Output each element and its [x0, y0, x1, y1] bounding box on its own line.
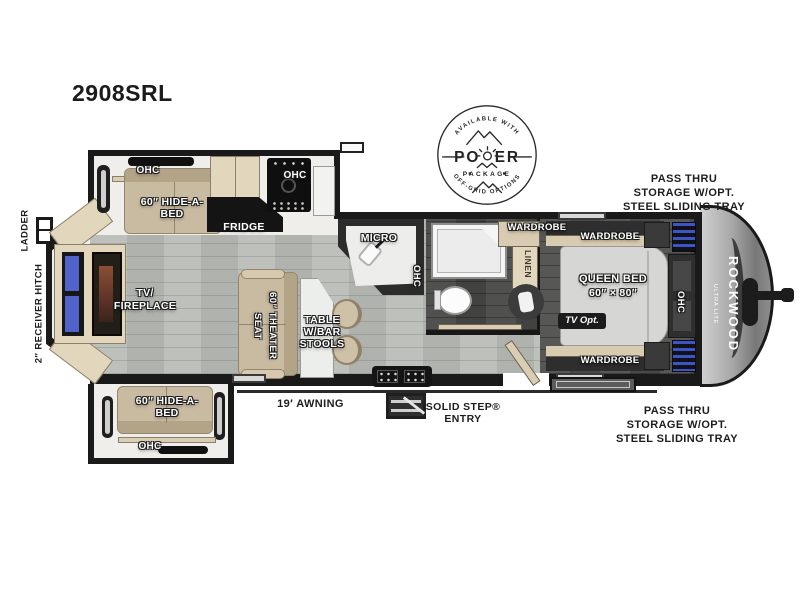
queen-bed-line1: QUEEN BED	[558, 272, 668, 286]
hitch-ball	[781, 288, 794, 302]
tv-fireplace-line2: FIREPLACE	[103, 300, 187, 313]
storage-bin-top	[672, 222, 696, 252]
table-line2: W/BAR	[292, 326, 352, 338]
badge-available-text: AVAILABLE WITH	[454, 116, 520, 136]
hide-a-bed-bottom-line2: BED	[123, 407, 211, 419]
pass-thru-top-line1: PASS THRU	[609, 172, 759, 186]
shower	[431, 223, 507, 279]
ohc-bottom-label: OHC	[128, 441, 172, 453]
window-glass	[105, 400, 110, 434]
table-label: TABLE W/BAR STOOLS	[292, 314, 352, 350]
tray-inner	[556, 381, 630, 388]
storage-bin-bottom	[672, 340, 696, 372]
brand-mark: ROCKWOOD ULTRA LITE	[712, 244, 742, 364]
power-package-badge: AVAILABLE WITH OFF-GRID OPTIONS PO ER PA…	[434, 102, 540, 208]
stove-knobs	[271, 161, 307, 166]
tv-fireplace-line1: TV/	[103, 287, 187, 300]
tv-panel-top	[65, 256, 79, 291]
tv-fireplace-label: TV/ FIREPLACE	[103, 287, 187, 313]
pass-thru-bottom-line2: STORAGE W/OPT.	[602, 418, 752, 432]
theater-seat-label: 60″ THEATER SEAT	[246, 278, 280, 374]
toilet	[438, 286, 472, 315]
badge-package-text: PACKAGE	[463, 171, 511, 178]
bath-vanity	[508, 284, 544, 320]
griddle-burner-1	[377, 370, 398, 383]
page-title: 2908SRL	[72, 80, 173, 107]
brand-name: ROCKWOOD	[726, 256, 741, 352]
ladder-label: LADDER	[20, 186, 33, 276]
entry-line2: ENTRY	[418, 413, 508, 425]
fridge-cabinet	[210, 156, 260, 201]
hitch-arm	[756, 291, 784, 300]
wardrobe-bottom-label: WARDROBE	[565, 355, 655, 367]
linen-label: LINEN	[517, 243, 533, 285]
table-line3: STOOLS	[292, 338, 352, 350]
table-line1: TABLE	[292, 314, 352, 326]
sofa-back	[118, 421, 212, 433]
stove-grate-dots	[271, 201, 307, 210]
wardrobe-top-label: WARDROBE	[565, 231, 655, 243]
window-glass	[217, 397, 222, 435]
bath-door	[438, 324, 522, 330]
propane-tanks	[742, 278, 758, 326]
bedroom-ohc-label: OHC	[670, 280, 686, 324]
pass-thru-top-line2: STORAGE W/OPT.	[609, 186, 759, 200]
bedroom-window-top	[558, 212, 606, 220]
awning-label: 19′ AWNING	[258, 398, 363, 410]
pass-thru-top-line3: STEEL SLIDING TRAY	[609, 200, 759, 214]
hide-a-bed-top-line2: BED	[128, 208, 216, 220]
badge-dot-left	[469, 172, 471, 174]
hide-a-bed-top-label: 60″ HIDE-A- BED	[128, 196, 216, 220]
slideout-bottom-window-left	[102, 396, 113, 438]
ohc-range-label: OHC	[272, 170, 318, 182]
ohc-corner-label: OHC	[408, 254, 422, 298]
slideout-top-window	[97, 165, 110, 213]
badge-dot-right	[503, 172, 505, 174]
zigzag-icon	[477, 163, 496, 167]
brand-sub: ULTRA LITE	[712, 284, 718, 324]
badge-power-right: ER	[495, 149, 520, 166]
shower-glass	[437, 229, 501, 273]
vanity-sink	[517, 291, 534, 313]
tv-opt-badge: TV Opt.	[558, 313, 606, 329]
tv-panel-bottom	[65, 296, 79, 332]
pass-thru-bottom-label: PASS THRU STORAGE W/OPT. STEEL SLIDING T…	[602, 404, 752, 446]
hide-a-bed-bottom-label: 60″ HIDE-A- BED	[123, 395, 211, 419]
hide-a-bed-top-line1: 60″ HIDE-A-	[128, 196, 216, 208]
queen-bed-label: QUEEN BED 60″ × 80″	[558, 272, 668, 300]
window-glass	[101, 170, 106, 208]
queen-bed-line2: 60″ × 80″	[558, 286, 668, 300]
griddle-burner-2	[404, 370, 425, 383]
hide-a-bed-bottom-line1: 60″ HIDE-A-	[123, 395, 211, 407]
slideout-bottom-window-right	[214, 392, 225, 440]
ladder-rung	[39, 229, 50, 231]
receiver-hitch-label: 2″ RECEIVER HITCH	[34, 257, 47, 371]
micro-label: MICRO	[351, 232, 407, 244]
bottom-window	[232, 374, 266, 383]
sliding-tray	[550, 377, 636, 392]
ohc-top-label: OHC	[126, 165, 170, 177]
tv-screen	[62, 252, 84, 336]
exterior-vent	[340, 142, 364, 153]
toilet-tank	[434, 290, 441, 310]
pass-thru-top-label: PASS THRU STORAGE W/OPT. STEEL SLIDING T…	[609, 172, 759, 214]
floorplan-page: 2908SRL AVAILABLE WITH OFF-GRID OPTIONS …	[0, 0, 800, 600]
badge-power-left: PO	[454, 149, 480, 166]
pass-thru-bottom-line1: PASS THRU	[602, 404, 752, 418]
mountains-icon	[467, 131, 502, 144]
solid-step-entry-label: SOLID STEP® ENTRY	[418, 401, 508, 425]
range-stove	[267, 158, 311, 212]
fridge-cabinet-line	[235, 157, 236, 200]
entry-line1: SOLID STEP®	[418, 401, 508, 413]
fridge-label: FRIDGE	[212, 221, 276, 233]
pass-thru-bottom-line3: STEEL SLIDING TRAY	[602, 432, 752, 446]
outdoor-griddle	[372, 366, 432, 387]
